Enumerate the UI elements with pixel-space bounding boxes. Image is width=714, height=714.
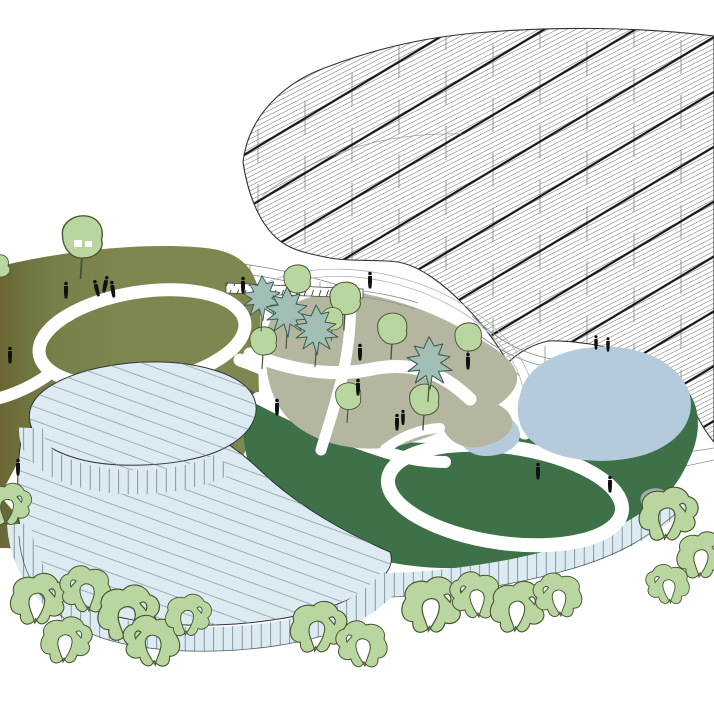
tree-window-gap: [85, 241, 92, 247]
large-pond: [518, 347, 691, 461]
axonometric-scene: [0, 0, 714, 714]
tree-window-gap: [74, 240, 82, 247]
architectural-illustration-page: [0, 0, 714, 714]
